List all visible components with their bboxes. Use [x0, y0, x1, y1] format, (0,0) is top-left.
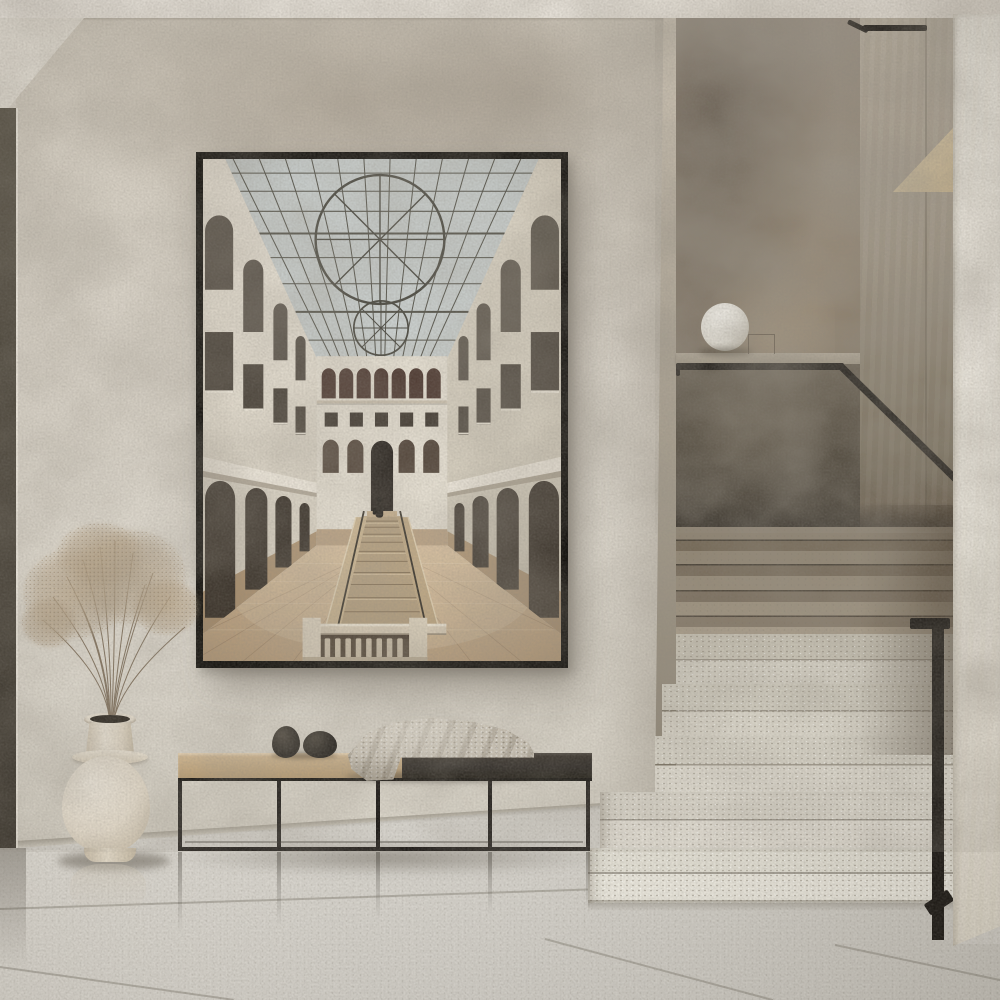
globe-lamp: [701, 303, 749, 351]
artwork-image: [203, 159, 561, 661]
bench-leg-reflection: [488, 852, 492, 914]
bench-leg: [586, 781, 590, 850]
artwork-vignette: [203, 159, 561, 661]
pebble-sculpture: [272, 726, 300, 758]
bench-leg: [277, 781, 281, 850]
handrail-top-horizontal: [676, 363, 844, 370]
bench-leg-reflection: [376, 852, 380, 920]
stair-step-upper: [676, 551, 953, 576]
wire-stand: [748, 334, 775, 354]
floor-vase: [40, 700, 180, 940]
stair-step-light: [662, 684, 953, 736]
bench-rear-rail: [185, 841, 583, 843]
stair-step-light: [655, 736, 953, 792]
vase-mouth-opening: [90, 715, 130, 723]
bench-leg-reflection: [277, 852, 281, 926]
handrail-lower-bracket: [910, 618, 950, 629]
vase-body: [62, 756, 150, 852]
stair-step-light: [588, 848, 953, 903]
vase-neck: [86, 723, 134, 753]
right-pillar: [953, 14, 1000, 946]
bench-leg: [488, 781, 492, 850]
stairwell-back-wall: [676, 18, 860, 353]
stair-step-light: [600, 792, 953, 848]
bench-leg: [376, 781, 380, 850]
left-door-frame: [0, 108, 16, 848]
handrail-end-drop: [676, 363, 680, 376]
vase-foot: [84, 848, 136, 862]
interior-photo-scene: [0, 0, 1000, 1000]
stairwell-side-wall: [860, 18, 953, 532]
bench: [175, 700, 595, 960]
stair-step-light: [676, 634, 953, 684]
pebble-sculpture: [303, 731, 337, 758]
bench-leg-reflection: [586, 852, 590, 910]
stair-parapet: [676, 364, 860, 528]
stair-step-upper: [676, 576, 953, 602]
framed-artwork: [196, 152, 568, 668]
handrail-upper-floor-bar: [863, 25, 927, 31]
ceiling: [0, 0, 1000, 18]
bench-bottom-rail: [178, 847, 590, 851]
stair-step-upper: [676, 527, 953, 551]
